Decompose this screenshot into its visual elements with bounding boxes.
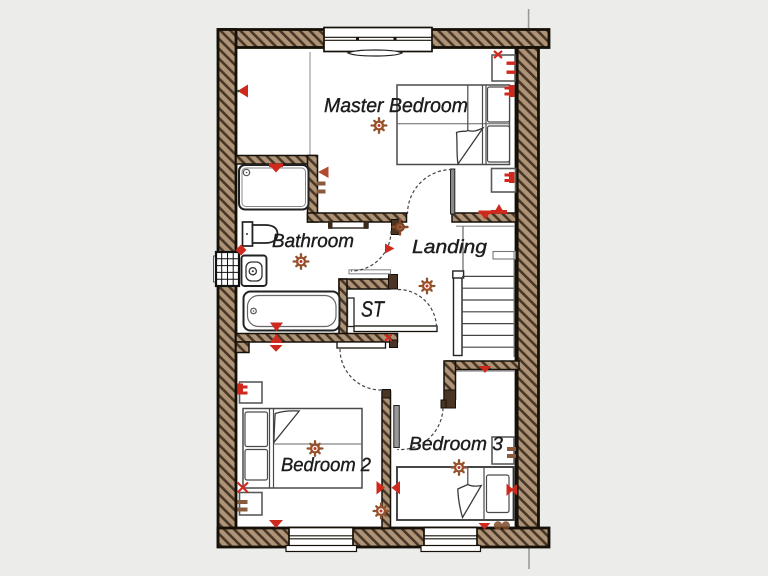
svg-text:Landing: Landing — [412, 237, 487, 258]
svg-text:Bedroom 3: Bedroom 3 — [409, 434, 503, 455]
svg-text:ST: ST — [361, 297, 385, 322]
svg-text:Bedroom 2: Bedroom 2 — [281, 455, 371, 476]
svg-text:Bathroom: Bathroom — [272, 231, 354, 252]
svg-text:Master Bedroom: Master Bedroom — [324, 95, 468, 117]
